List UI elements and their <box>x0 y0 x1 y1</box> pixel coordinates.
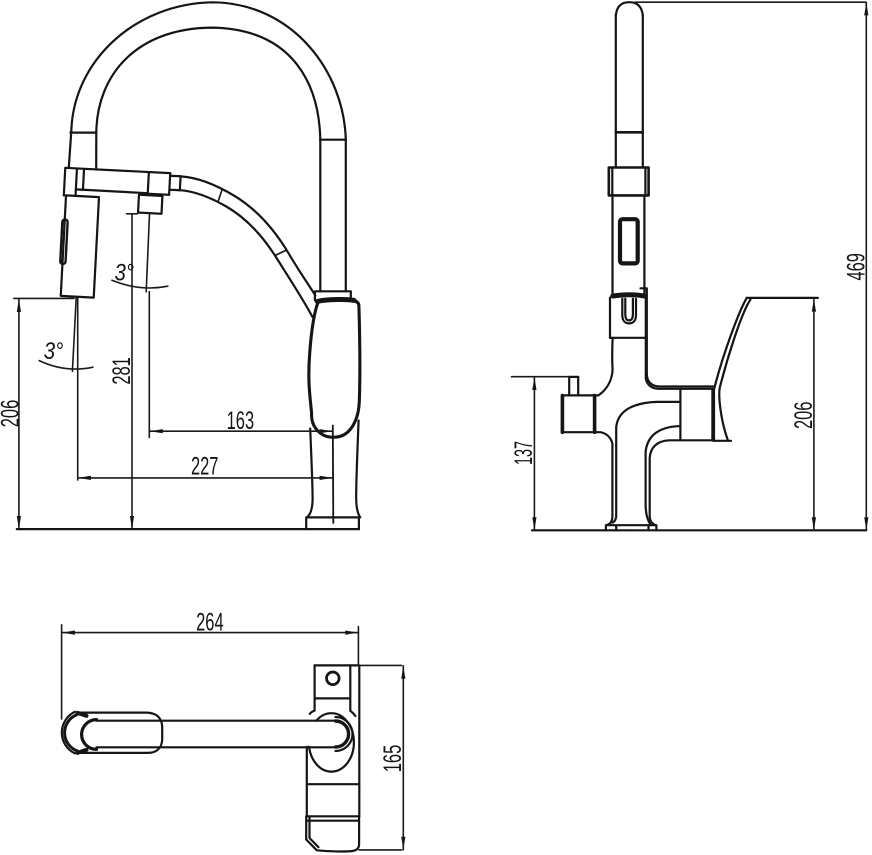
svg-text:206: 206 <box>790 402 818 430</box>
svg-text:137: 137 <box>510 441 538 465</box>
svg-text:206: 206 <box>0 400 24 428</box>
svg-text:163: 163 <box>227 407 255 435</box>
svg-text:165: 165 <box>379 745 407 773</box>
svg-text:227: 227 <box>191 452 219 480</box>
svg-text:264: 264 <box>196 609 224 637</box>
svg-text:3°: 3° <box>115 259 135 286</box>
svg-text:469: 469 <box>843 253 871 281</box>
svg-text:3°: 3° <box>44 338 64 365</box>
svg-text:281: 281 <box>108 357 136 385</box>
